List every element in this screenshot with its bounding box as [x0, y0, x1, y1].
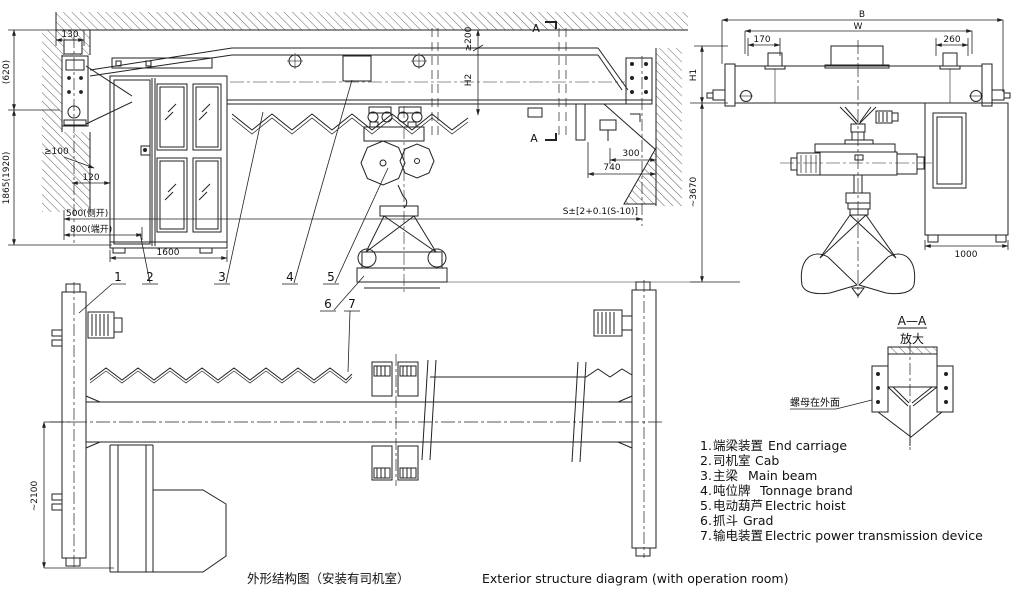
- dim-800-end-open: 800(端开): [70, 223, 112, 235]
- callout-1: 1: [114, 270, 122, 284]
- legend-en-1: End carriage: [768, 438, 847, 453]
- dim-170: 170: [753, 35, 770, 45]
- legend-no-7: 7.: [700, 528, 712, 543]
- callout-3: 3: [218, 270, 226, 284]
- detail-title: A—A: [898, 314, 927, 328]
- dim-b: B: [859, 10, 865, 20]
- dim-3670: ~3670: [689, 177, 699, 208]
- legend-cn-5: 电动葫芦: [713, 498, 763, 513]
- caption: 外形结构图（安装有司机室） Exterior structure diagram…: [247, 571, 788, 586]
- dim-2100: ~2100: [30, 481, 40, 512]
- legend-no-1: 1.: [700, 438, 712, 453]
- legend-cn-7: 输电装置: [713, 528, 763, 543]
- legend-en-7: Electric power transmission device: [765, 528, 983, 543]
- legend-en-4: Tonnage brand: [759, 483, 853, 498]
- callout-4: 4: [286, 270, 294, 284]
- legend-en-5: Electric hoist: [765, 498, 846, 513]
- caption-cn: 外形结构图（安装有司机室）: [247, 571, 410, 586]
- legend-no-3: 3.: [700, 468, 712, 483]
- dim-300: 300: [622, 149, 639, 159]
- ceiling-hatch: [56, 12, 688, 30]
- legend-en-6: Grad: [743, 513, 773, 528]
- callout-6: 6: [324, 297, 332, 311]
- legend-cn-2: 司机室: [713, 453, 751, 468]
- legend-cn-4: 吨位牌: [713, 483, 751, 498]
- legend-no-5: 5.: [700, 498, 712, 513]
- dim-ge200: ≥200: [464, 26, 474, 51]
- callout-5: 5: [327, 270, 335, 284]
- legend-cn-3: 主梁: [713, 468, 739, 483]
- dim-500-side-open: 500(侧开): [66, 207, 108, 219]
- legend-no-2: 2.: [700, 453, 712, 468]
- dim-120: 120: [82, 173, 99, 183]
- dim-h1: H1: [689, 69, 699, 82]
- legend-no-6: 6.: [700, 513, 712, 528]
- legend-cn-1: 端梁装置: [713, 438, 763, 453]
- dim-h2: H2: [464, 74, 474, 87]
- dim-1865: 1865(1920): [2, 152, 12, 205]
- detail-note: 螺母在外面: [790, 397, 840, 409]
- dim-1000: 1000: [955, 250, 978, 260]
- caption-en: Exterior structure diagram (with operati…: [482, 571, 788, 586]
- dim-260: 260: [943, 35, 960, 45]
- dim-1600: 1600: [157, 248, 180, 258]
- legend-cn-6: 抓斗: [713, 513, 738, 528]
- section-mark-a-bottom: A: [530, 132, 538, 145]
- dim-620: (620): [2, 60, 12, 84]
- dim-span-formula: S±[2+0.1(S-10)]: [563, 207, 638, 217]
- crane-structure-drawing: 130 (620) 1865(1920) ≥100 120 500(侧开) 80…: [0, 0, 1033, 601]
- callout-7: 7: [348, 297, 356, 311]
- technical-drawing-page: 130 (620) 1865(1920) ≥100 120 500(侧开) 80…: [0, 0, 1033, 601]
- section-mark-a-top: A: [532, 22, 540, 35]
- dim-ge100: ≥100: [44, 147, 69, 157]
- dim-130: 130: [61, 30, 78, 40]
- legend-en-3: Main beam: [748, 468, 817, 483]
- callout-2: 2: [146, 270, 154, 284]
- detail-subtitle: 放大: [900, 331, 924, 346]
- dim-w: W: [854, 22, 863, 32]
- legend-no-4: 4.: [700, 483, 712, 498]
- legend-en-2: Cab: [755, 453, 779, 468]
- dim-740: 740: [603, 163, 620, 173]
